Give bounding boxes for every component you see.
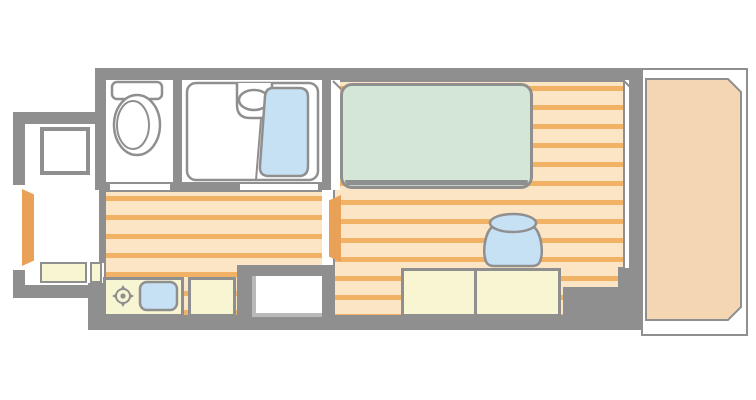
bath-door-opening [240, 184, 318, 190]
bathroom-floor [182, 80, 322, 183]
wall-main-right [629, 80, 641, 287]
wall-toilet-left [95, 68, 106, 190]
desk-section-right [474, 268, 561, 317]
shoe-cabinet [40, 127, 90, 175]
toilet-room-floor [106, 80, 173, 183]
wall-entrance-bottom [13, 285, 99, 298]
utility-niche-interior [252, 276, 322, 317]
balcony-window-gap [625, 80, 629, 268]
toilet-door-opening [110, 184, 170, 190]
bed [340, 83, 533, 189]
balcony-railing [641, 68, 748, 336]
wall-top [95, 68, 641, 80]
floor-plan [0, 0, 756, 400]
entrance-step-board [40, 262, 87, 283]
main-room-left-strip [331, 80, 340, 190]
entrance-step-board-small [90, 262, 102, 283]
wall-step-high [618, 267, 641, 330]
front-door-leaf [22, 189, 34, 266]
wall-toilet-bath-divider [173, 80, 182, 183]
wall-entrance-hall-divider [99, 183, 105, 263]
desk-section-left [401, 268, 477, 317]
wall-bottom [88, 317, 641, 330]
interior-door-leaf [329, 195, 341, 262]
wall-entrance-top [13, 112, 106, 124]
kitchen-counter-side [188, 277, 236, 317]
kitchen-counter-main [103, 277, 184, 317]
